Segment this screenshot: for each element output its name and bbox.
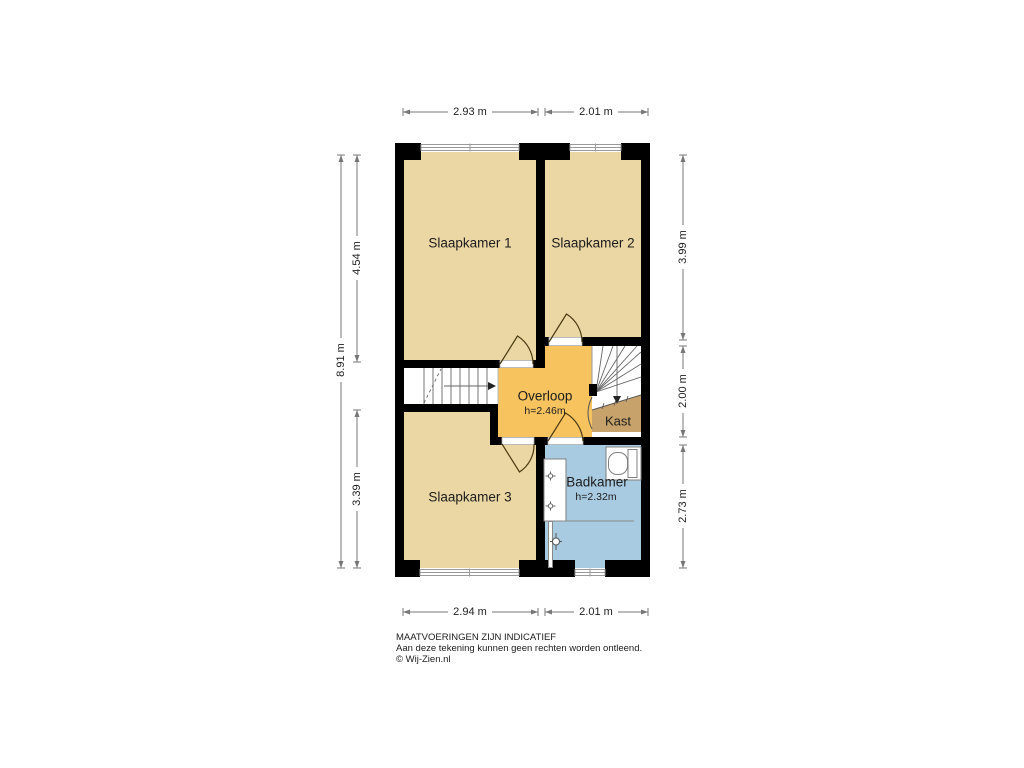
svg-text:2.93 m: 2.93 m <box>453 106 487 118</box>
wall-bedroom1-landing <box>404 360 500 368</box>
copyright-line: © Wij-Zien.nl <box>396 654 451 665</box>
wall-top-pier-right <box>621 143 650 160</box>
svg-text:2.94 m: 2.94 m <box>453 606 487 618</box>
disclaimer: MAATVOERINGEN ZIJN INDICATIEF Aan deze t… <box>396 632 642 665</box>
wall-landing-bathroom <box>583 437 641 445</box>
dim-left-outer: 8.91 m <box>335 155 347 568</box>
label-overloop: Overloop <box>518 389 573 404</box>
svg-text:4.54 m: 4.54 m <box>351 241 363 275</box>
wall-bottom-pier-mid <box>519 560 575 577</box>
label-badkamer: Badkamer <box>566 475 628 490</box>
wall-bedroom2-landing-right <box>582 337 641 346</box>
svg-text:2.00 m: 2.00 m <box>677 374 689 408</box>
svg-text:8.91 m: 8.91 m <box>335 343 347 377</box>
wall-between-bedroom1-2 <box>536 152 545 368</box>
room-slaapkamer1 <box>404 152 536 360</box>
wall-left <box>395 143 404 577</box>
dim-right-bottom: 2.73 m <box>677 445 689 568</box>
shower-partition <box>549 522 553 568</box>
wall-bottom-pier-right <box>605 560 650 577</box>
svg-text:2.01 m: 2.01 m <box>579 606 613 618</box>
label-badkamer-height: h=2.32m <box>575 491 616 503</box>
wall-stairs-bedroom3 <box>395 404 498 412</box>
svg-text:2.01 m: 2.01 m <box>579 106 613 118</box>
label-slaapkamer2: Slaapkamer 2 <box>551 236 634 251</box>
label-slaapkamer3: Slaapkamer 3 <box>428 490 511 505</box>
label-slaapkamer1: Slaapkamer 1 <box>428 236 511 251</box>
disclaimer-line2: Aan deze tekening kunnen geen rechten wo… <box>396 643 642 654</box>
dim-left-bottom: 3.39 m <box>351 410 363 568</box>
wall-bedroom2-landing-left <box>536 337 549 346</box>
dim-top-left: 2.93 m <box>403 106 538 118</box>
floor-plan-drawing: Slaapkamer 1 Slaapkamer 2 Slaapkamer 3 O… <box>0 0 1024 768</box>
dim-bottom-left: 2.94 m <box>403 606 538 618</box>
label-kast: Kast <box>605 414 631 429</box>
dim-top-right: 2.01 m <box>545 106 648 118</box>
dim-right-top: 3.99 m <box>677 155 689 340</box>
dim-right-middle: 2.00 m <box>677 346 689 437</box>
wall-top-pier-left <box>395 143 421 160</box>
dim-bottom-right: 2.01 m <box>545 606 648 618</box>
disclaimer-line1: MAATVOERINGEN ZIJN INDICATIEF <box>396 632 556 643</box>
sink-unit <box>544 459 566 521</box>
wall-bottom-pier-left <box>395 560 420 577</box>
svg-text:2.73 m: 2.73 m <box>677 489 689 523</box>
dim-left-top: 4.54 m <box>351 155 363 362</box>
svg-text:3.39 m: 3.39 m <box>351 472 363 506</box>
svg-text:3.99 m: 3.99 m <box>677 230 689 264</box>
floor-plan-page: Slaapkamer 1 Slaapkamer 2 Slaapkamer 3 O… <box>0 0 1024 768</box>
newel-post <box>589 384 597 396</box>
label-overloop-height: h=2.46m <box>524 405 565 417</box>
wall-right <box>641 143 650 577</box>
